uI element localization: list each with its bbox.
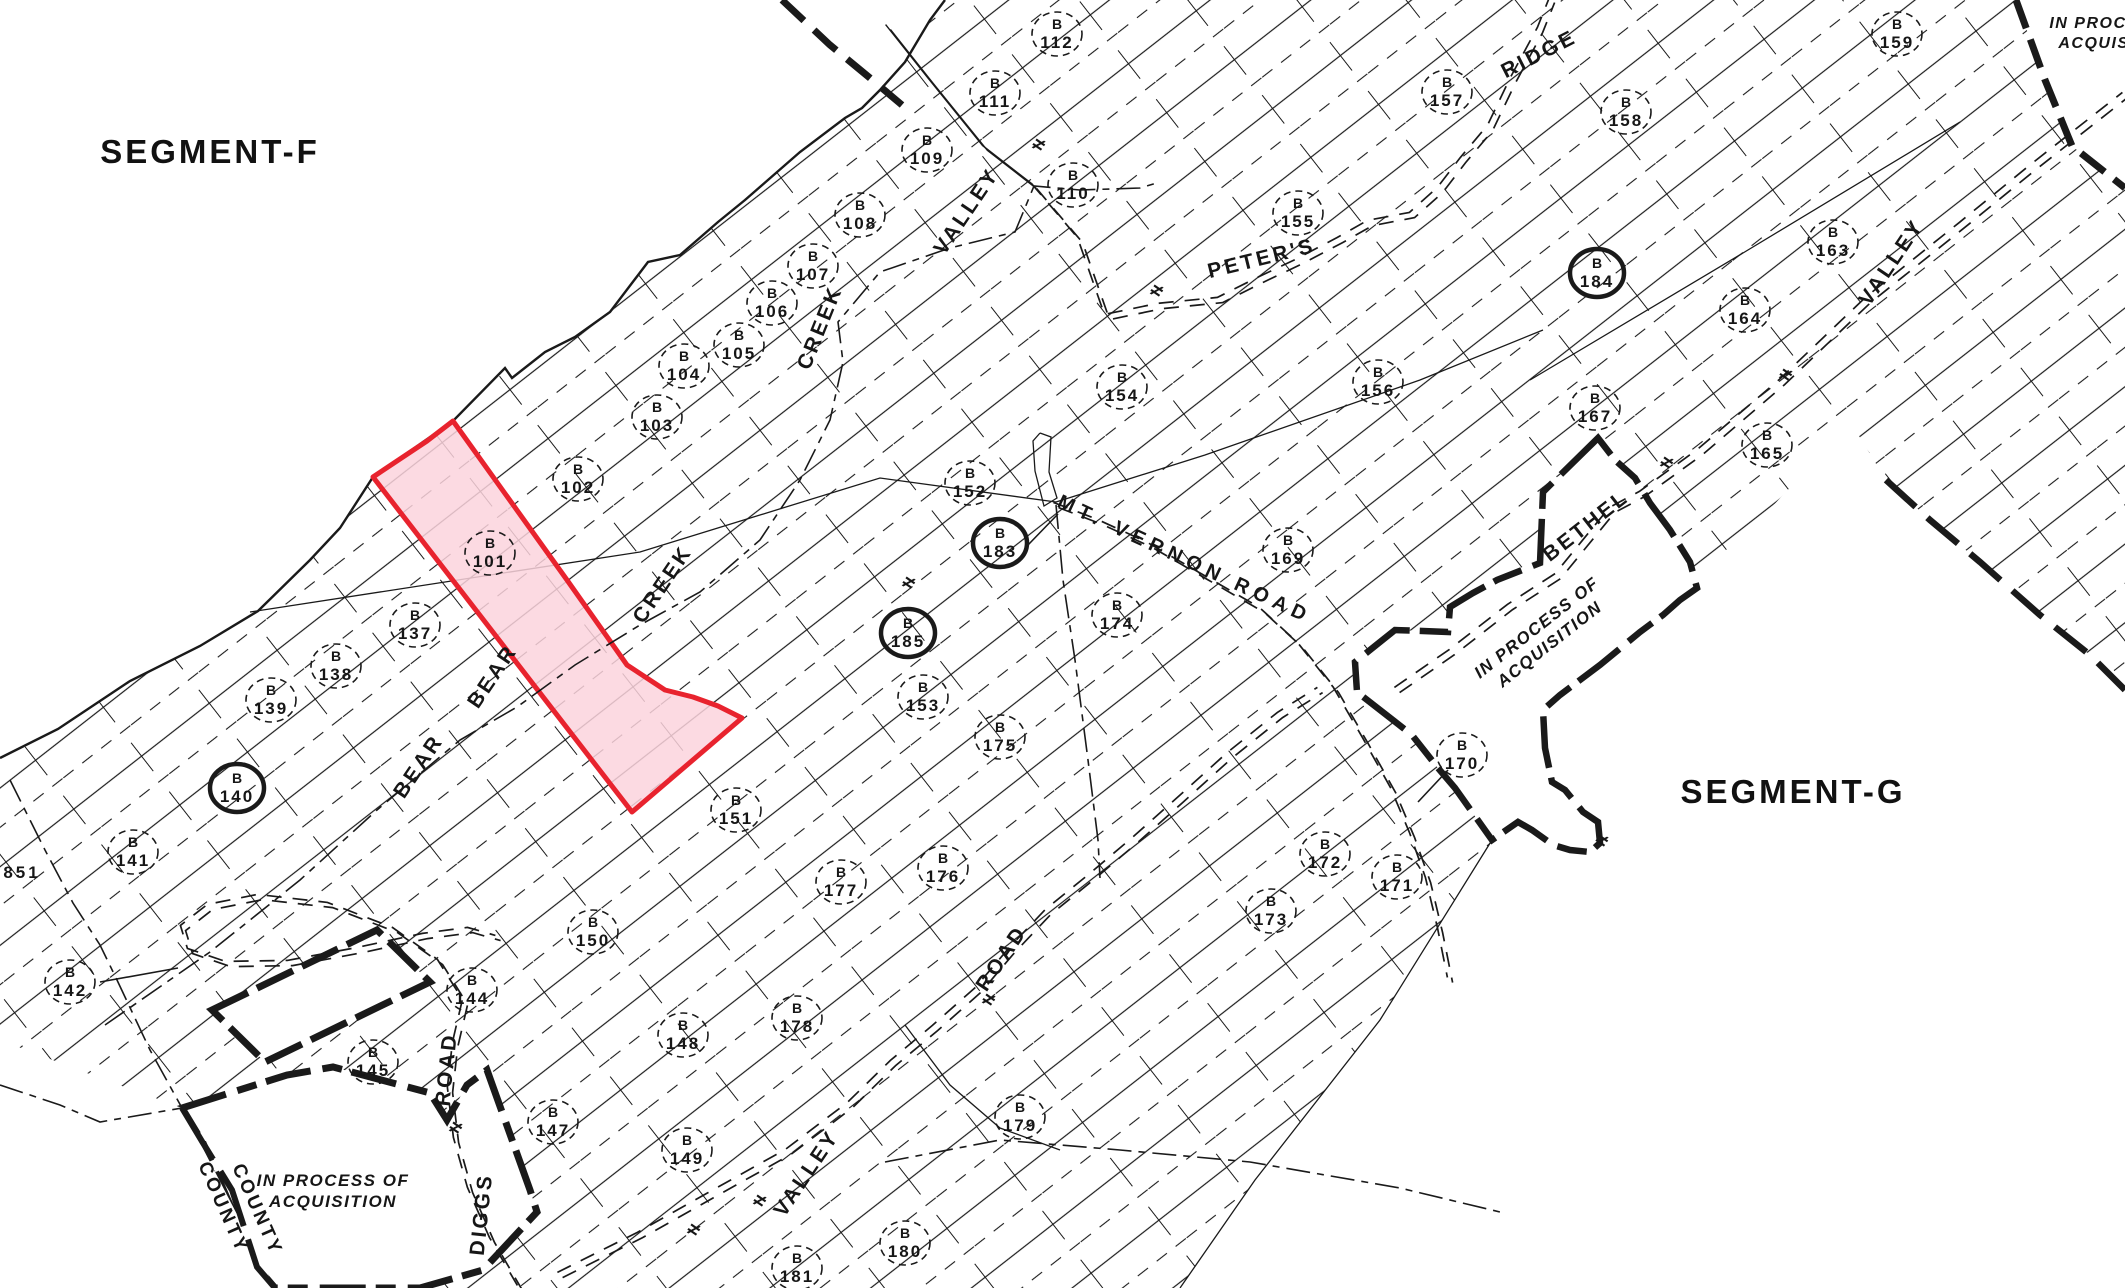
parcel-prefix: B <box>485 535 495 551</box>
parcel-map-svg: ≠≠≠≠≠≠≠≠≠≠BEARBEARCREEKCREEKVALLEYVALLEY… <box>0 0 2125 1288</box>
parcel-number: 139 <box>254 699 288 718</box>
parcel-prefix: B <box>990 75 1000 91</box>
parcel-prefix: B <box>368 1044 378 1060</box>
parcel-number: 178 <box>780 1017 814 1036</box>
parcel-prefix: B <box>808 248 818 264</box>
parcel-prefix: B <box>1068 167 1078 183</box>
parcel-prefix: B <box>679 348 689 364</box>
parcel-prefix: B <box>573 461 583 477</box>
parcel-prefix: B <box>903 615 913 631</box>
parcel-number: 169 <box>1271 549 1305 568</box>
parcel-prefix: B <box>232 770 242 786</box>
parcel-prefix: B <box>855 197 865 213</box>
parcel-number: 106 <box>755 302 789 321</box>
parcel-number: 150 <box>576 931 610 950</box>
parcel-prefix: B <box>678 1017 688 1033</box>
parcel-number: 164 <box>1728 309 1762 328</box>
parcel-number: 180 <box>888 1242 922 1261</box>
parcel-prefix: B <box>588 914 598 930</box>
parcel-prefix: B <box>1592 255 1602 271</box>
parcel-prefix: B <box>792 1000 802 1016</box>
parcel-prefix: B <box>900 1225 910 1241</box>
parcel-number: 140 <box>220 787 254 806</box>
parcel-prefix: B <box>836 864 846 880</box>
parcel-number: 148 <box>666 1034 700 1053</box>
segment-g-title: SEGMENT-G <box>1680 773 1905 810</box>
parcel-number: 108 <box>843 214 877 233</box>
parcel-prefix: B <box>467 972 477 988</box>
parcel-prefix: B <box>767 285 777 301</box>
parcel-prefix: B <box>1112 597 1122 613</box>
parcel-number: 137 <box>398 624 432 643</box>
parcel-number: 156 <box>1361 381 1395 400</box>
parcel-prefix: B <box>1590 390 1600 406</box>
parcel-number: 153 <box>906 696 940 715</box>
segment-line-top <box>782 0 902 105</box>
parcel-prefix: B <box>682 1132 692 1148</box>
road-label: 851 <box>3 863 40 882</box>
parcel-number: 110 <box>1056 184 1089 203</box>
parcel-number: 155 <box>1281 212 1315 231</box>
parcel-number: 165 <box>1750 444 1784 463</box>
parcel-number: 101 <box>473 552 507 571</box>
parcel-number: 149 <box>670 1149 704 1168</box>
parcel-number: 177 <box>824 881 858 900</box>
parcel-prefix: B <box>548 1104 558 1120</box>
parcel-number: 141 <box>116 851 150 870</box>
map-canvas: ≠≠≠≠≠≠≠≠≠≠BEARBEARCREEKCREEKVALLEYVALLEY… <box>0 0 2125 1288</box>
parcel-number: 158 <box>1609 111 1643 130</box>
parcel-prefix: B <box>1740 292 1750 308</box>
parcel-prefix: B <box>1293 195 1303 211</box>
segment-f-title: SEGMENT-F <box>100 133 320 170</box>
parcel-number: 102 <box>561 478 595 497</box>
parcel-number: 152 <box>953 482 987 501</box>
parcel-number: 171 <box>1380 876 1414 895</box>
parcel-number: 174 <box>1100 614 1134 633</box>
parcel-prefix: B <box>734 327 744 343</box>
parcel-prefix: B <box>1283 532 1293 548</box>
parcel-prefix: B <box>995 719 1005 735</box>
parcel-number: 142 <box>53 981 87 1000</box>
parcel-number: 145 <box>356 1061 390 1080</box>
parcel-number: 105 <box>722 344 756 363</box>
parcel-number: 173 <box>1254 910 1288 929</box>
parcel-number: 144 <box>455 989 489 1008</box>
parcel-prefix: B <box>1373 364 1383 380</box>
parcel-prefix: B <box>1442 74 1452 90</box>
parcel-number: 157 <box>1430 91 1464 110</box>
parcel-number: 185 <box>891 632 925 651</box>
parcel-prefix: B <box>1457 737 1467 753</box>
parcel-number: 103 <box>640 416 674 435</box>
map-layers: ≠≠≠≠≠≠≠≠≠≠BEARBEARCREEKCREEKVALLEYVALLEY… <box>0 0 2125 1288</box>
parcel-prefix: B <box>1052 16 1062 32</box>
parcel-prefix: B <box>65 964 75 980</box>
parcel-prefix: B <box>731 792 741 808</box>
parcel-number: 159 <box>1880 33 1914 52</box>
parcel-prefix: B <box>918 679 928 695</box>
parcel-number: 112 <box>1040 33 1073 52</box>
parcel-prefix: B <box>128 834 138 850</box>
parcel-prefix: B <box>938 850 948 866</box>
parcel-prefix: B <box>1117 369 1127 385</box>
parcel-number: 151 <box>719 809 753 828</box>
parcel-number: 172 <box>1308 853 1342 872</box>
parcel-number: 183 <box>983 542 1017 561</box>
parcel-number: 138 <box>319 665 353 684</box>
parcel-prefix: B <box>1392 859 1402 875</box>
parcel-number: 154 <box>1105 386 1139 405</box>
parcel-prefix: B <box>652 399 662 415</box>
parcel-number: 170 <box>1445 754 1479 773</box>
parcel-prefix: B <box>1320 836 1330 852</box>
parcel-number: 184 <box>1580 272 1614 291</box>
parcel-number: 107 <box>796 265 830 284</box>
parcel-number: 104 <box>667 365 701 384</box>
parcel-prefix: B <box>1266 893 1276 909</box>
parcel-prefix: B <box>1015 1099 1025 1115</box>
parcel-prefix: B <box>410 607 420 623</box>
parcel-prefix: B <box>1621 94 1631 110</box>
parcel-number: 179 <box>1003 1116 1037 1135</box>
parcel-number: 176 <box>926 867 960 886</box>
parcel-prefix: B <box>995 525 1005 541</box>
parcel-number: 109 <box>910 149 944 168</box>
parcel-prefix: B <box>266 682 276 698</box>
parcel-prefix: B <box>331 648 341 664</box>
parcel-number: 175 <box>983 736 1017 755</box>
parcel-prefix: B <box>792 1250 802 1266</box>
parcel-prefix: B <box>965 465 975 481</box>
parcel-prefix: B <box>1762 427 1772 443</box>
parcel-number: 147 <box>536 1121 570 1140</box>
parcel-number: 111 <box>979 92 1012 111</box>
parcel-prefix: B <box>922 132 932 148</box>
parcel-prefix: B <box>1892 16 1902 32</box>
parcel-prefix: B <box>1828 224 1838 240</box>
parcel-number: 163 <box>1816 241 1850 260</box>
parcel-number: 181 <box>780 1267 814 1286</box>
parcel-number: 167 <box>1578 407 1612 426</box>
